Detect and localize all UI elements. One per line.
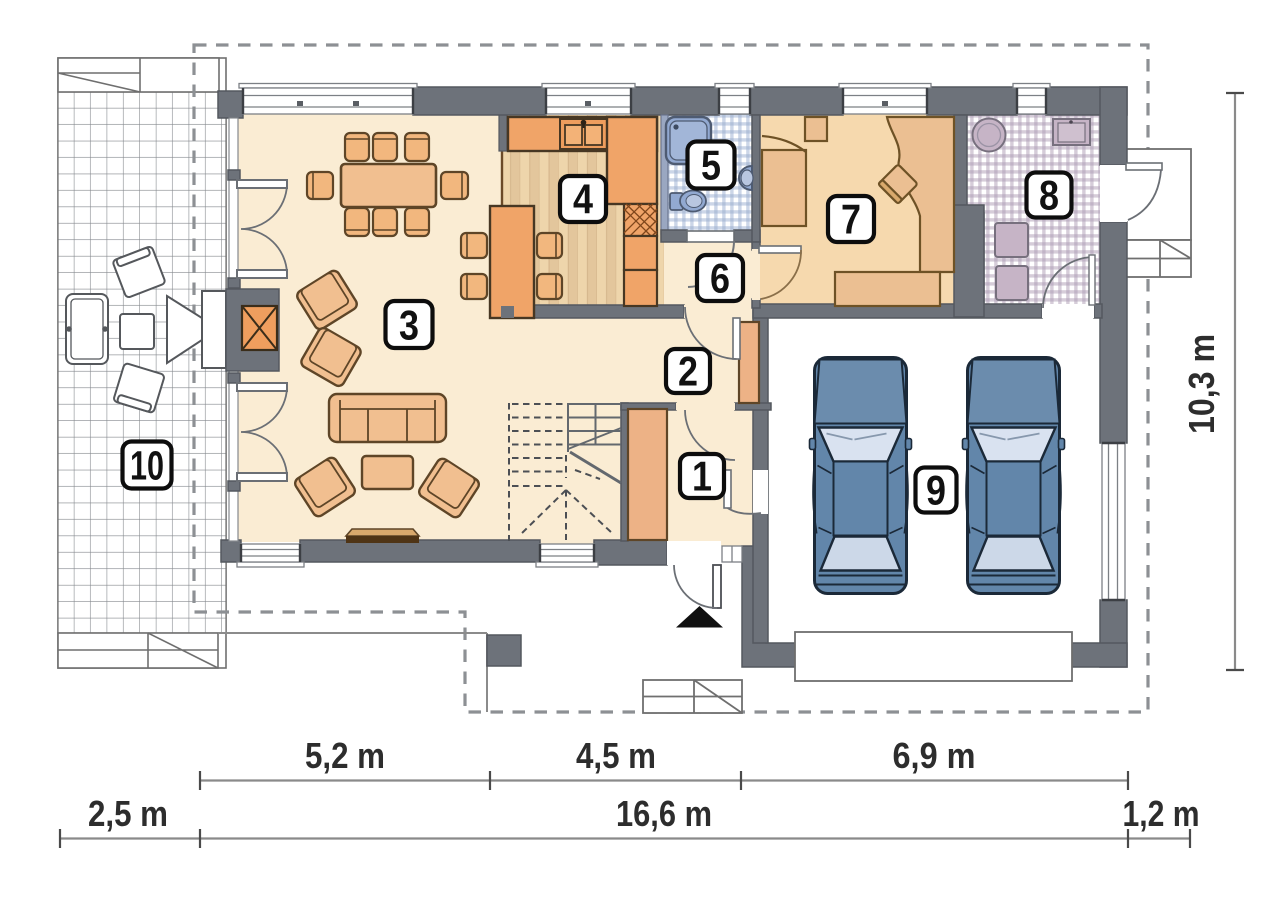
svg-text:7: 7 [841,196,861,243]
svg-text:5: 5 [701,142,721,189]
svg-text:8: 8 [1039,172,1059,219]
svg-text:6: 6 [710,255,730,302]
svg-text:2,5 m: 2,5 m [88,793,168,834]
svg-text:1: 1 [692,453,712,500]
svg-text:3: 3 [399,302,419,349]
svg-text:4: 4 [573,176,594,223]
svg-text:10: 10 [130,443,164,489]
svg-text:16,6 m: 16,6 m [616,793,712,834]
svg-text:6,9 m: 6,9 m [893,735,976,776]
svg-text:5,2 m: 5,2 m [305,735,385,776]
svg-text:9: 9 [926,467,946,514]
svg-text:4,5 m: 4,5 m [576,735,656,776]
svg-text:2: 2 [678,348,698,395]
svg-text:10,3 m: 10,3 m [1181,334,1222,434]
svg-text:1,2 m: 1,2 m [1123,793,1200,834]
